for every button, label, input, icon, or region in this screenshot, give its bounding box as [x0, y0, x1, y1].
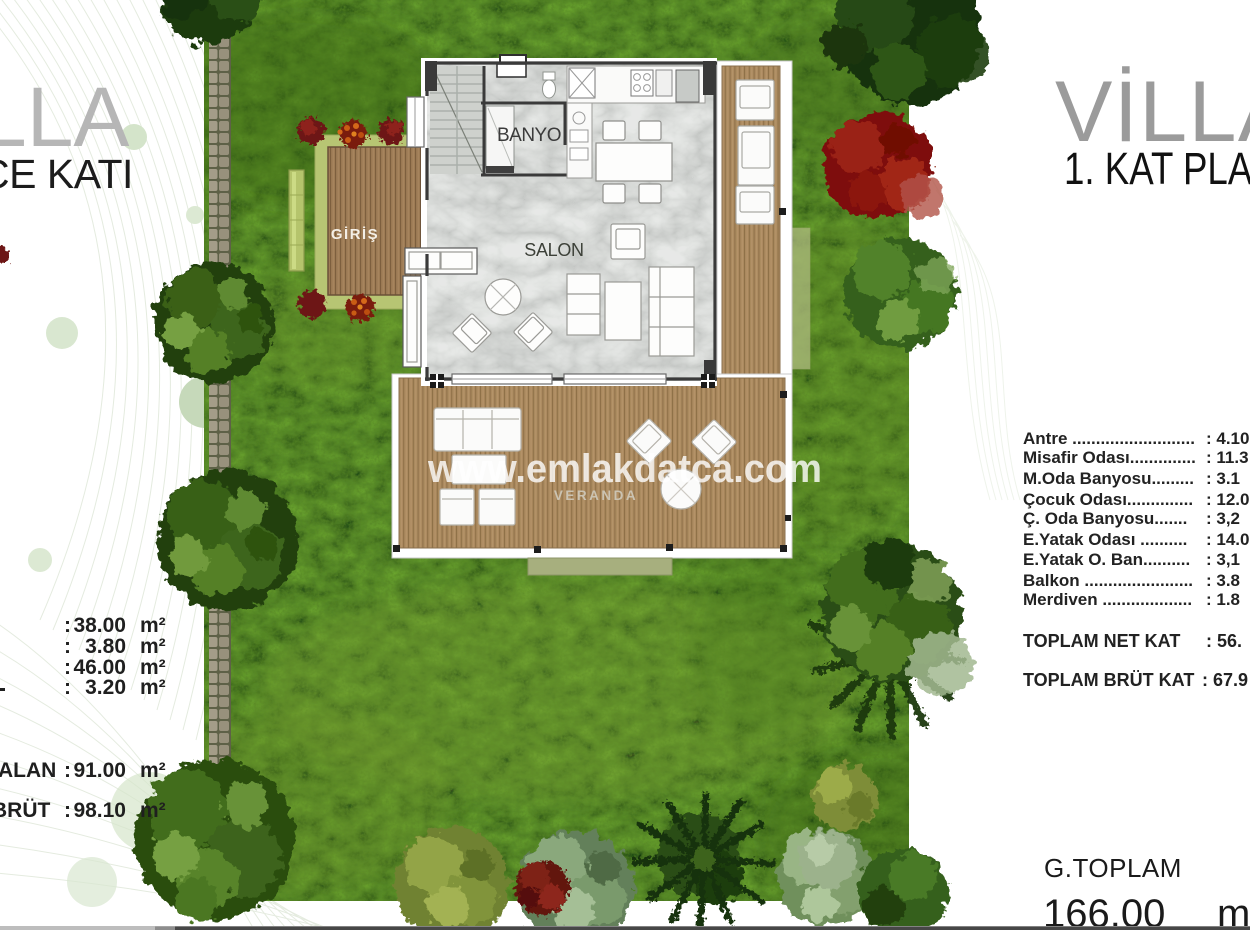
svg-text:m²: m²	[140, 759, 166, 782]
svg-text:G.TOPLAM: G.TOPLAM	[1044, 853, 1182, 883]
svg-text::: :	[64, 799, 71, 822]
svg-text:98.10: 98.10	[73, 799, 126, 822]
svg-text:M.Oda Banyosu.........: M.Oda Banyosu.........	[1023, 469, 1194, 488]
svg-text:LLA: LLA	[0, 70, 129, 164]
svg-text:BANYO: BANYO	[497, 125, 561, 146]
svg-text:m²: m²	[140, 676, 166, 699]
svg-text:: 3.8: : 3.8	[1206, 571, 1240, 590]
svg-text::: :	[64, 759, 71, 782]
svg-text:: 56.: : 56.	[1206, 631, 1242, 651]
svg-text:Çocuk Odası..............: Çocuk Odası..............	[1023, 490, 1193, 509]
svg-text:3.20: 3.20	[85, 676, 126, 699]
svg-text:91.00: 91.00	[73, 759, 126, 782]
svg-text:Misafir Odası..............: Misafir Odası..............	[1023, 448, 1196, 467]
svg-text:m²: m²	[140, 799, 166, 822]
svg-text:: 3.1: : 3.1	[1206, 469, 1240, 488]
svg-text::: :	[64, 635, 71, 658]
svg-text:BRÜT: BRÜT	[0, 799, 50, 822]
svg-text:: 12.0: : 12.0	[1206, 490, 1249, 509]
svg-text:Balkon .......................: Balkon .......................	[1023, 571, 1193, 590]
svg-text:m²: m²	[1217, 892, 1250, 930]
svg-text:m²: m²	[140, 635, 166, 658]
svg-text:www.emlakdatca.com: www.emlakdatca.com	[427, 447, 822, 491]
svg-text::: :	[64, 614, 71, 637]
svg-text:E.Yatak Odası ..........: E.Yatak Odası ..........	[1023, 530, 1187, 549]
svg-text:166.00: 166.00	[1043, 892, 1165, 930]
svg-text:TOPLAM BRÜT KAT: TOPLAM BRÜT KAT	[1023, 670, 1194, 690]
svg-text:SALON: SALON	[524, 240, 584, 260]
svg-text:: 14.0: : 14.0	[1206, 530, 1249, 549]
svg-text:E.Yatak O. Ban..........: E.Yatak O. Ban..........	[1023, 550, 1190, 569]
svg-text:ALAN: ALAN	[0, 759, 56, 782]
svg-text:: 4.10: : 4.10	[1206, 429, 1249, 448]
svg-text:: 67.9: : 67.9	[1202, 670, 1248, 690]
svg-text:1. KAT PLANI: 1. KAT PLANI	[1064, 143, 1250, 194]
svg-text:Ç. Oda Banyosu.......: Ç. Oda Banyosu.......	[1023, 509, 1187, 528]
svg-text:: 3,1: : 3,1	[1206, 550, 1240, 569]
svg-text:Merdiven ...................: Merdiven ...................	[1023, 590, 1192, 609]
svg-text:CE KATI: CE KATI	[0, 151, 133, 197]
svg-text:3.80: 3.80	[85, 635, 126, 658]
svg-text:GİRİŞ: GİRİŞ	[331, 226, 379, 243]
svg-text:m²: m²	[140, 614, 166, 637]
svg-text:: 3,2: : 3,2	[1206, 509, 1240, 528]
svg-text:: 1.8: : 1.8	[1206, 590, 1240, 609]
svg-text:38.00: 38.00	[73, 614, 126, 637]
svg-text::: :	[64, 676, 71, 699]
svg-text:TOPLAM NET KAT: TOPLAM NET KAT	[1023, 631, 1180, 651]
svg-text:Antre ........................: Antre ..........................	[1023, 429, 1195, 448]
svg-text:: 11.3: : 11.3	[1206, 448, 1249, 467]
